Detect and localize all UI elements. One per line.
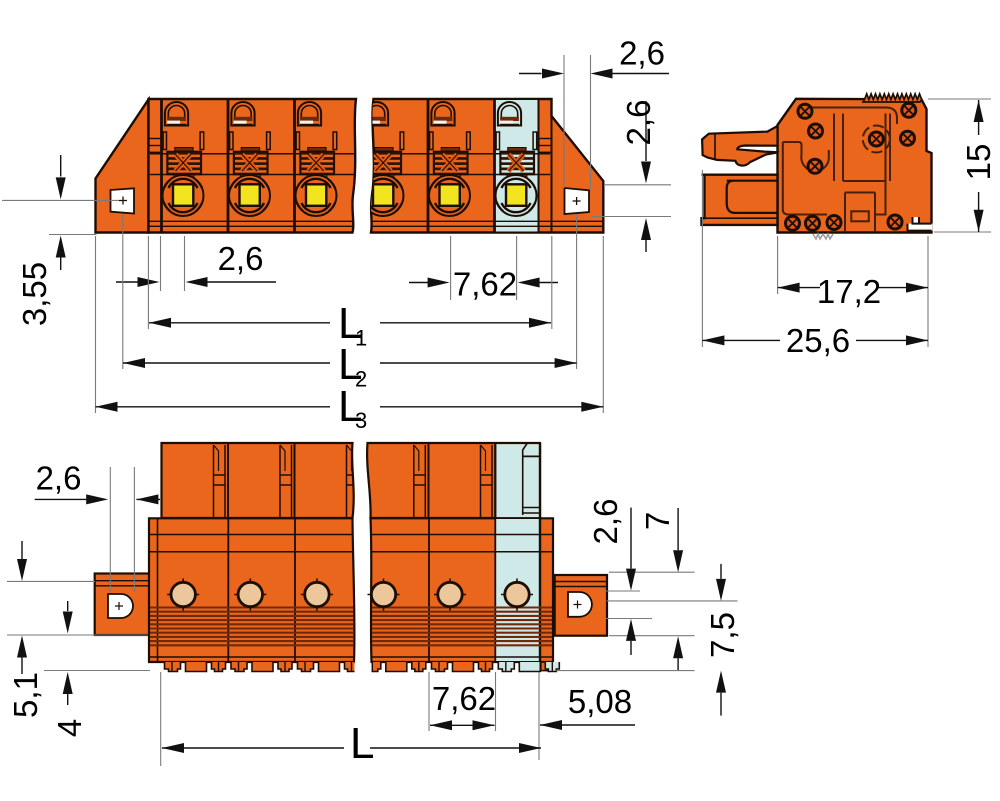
svg-text:7,62: 7,62 (432, 680, 496, 717)
svg-text:2,6: 2,6 (620, 100, 657, 146)
svg-text:25,6: 25,6 (786, 322, 850, 359)
svg-text:15: 15 (960, 144, 997, 181)
svg-text:3,55: 3,55 (16, 262, 53, 326)
svg-text:2,6: 2,6 (619, 35, 665, 72)
svg-text:17,2: 17,2 (817, 273, 881, 310)
svg-text:7: 7 (639, 512, 676, 530)
svg-text:7,62: 7,62 (453, 266, 517, 303)
svg-text:2,6: 2,6 (36, 460, 82, 497)
svg-text:4: 4 (51, 719, 88, 737)
svg-text:5,1: 5,1 (7, 672, 44, 718)
svg-text:7,5: 7,5 (704, 612, 741, 658)
svg-text:5,08: 5,08 (568, 683, 632, 720)
svg-text:2,6: 2,6 (587, 499, 624, 545)
svg-text:3: 3 (355, 408, 367, 433)
svg-text:2,6: 2,6 (218, 240, 264, 277)
svg-text:L: L (350, 719, 374, 768)
